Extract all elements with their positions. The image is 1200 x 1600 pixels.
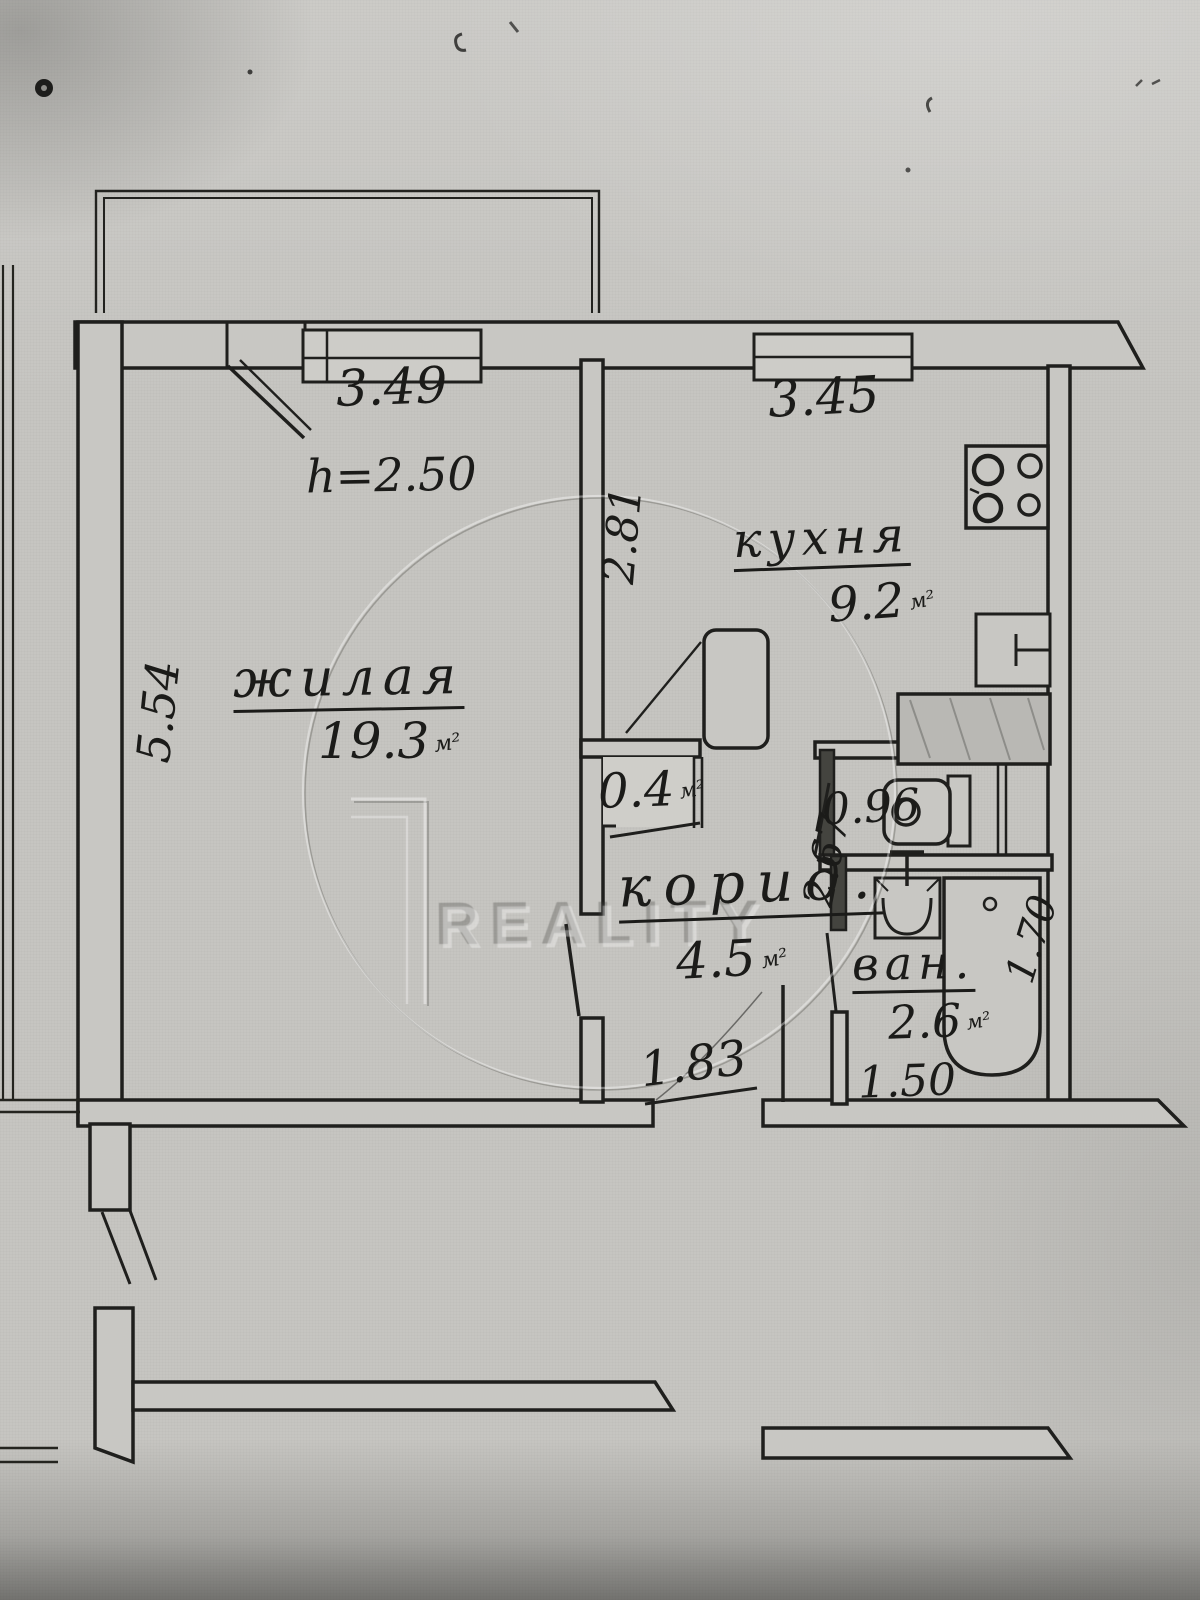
door-kitchen xyxy=(626,630,768,748)
room-area-bathroom: 2.6м² xyxy=(887,996,992,1046)
area-unit: м² xyxy=(678,776,707,801)
stairwell-walls xyxy=(90,1124,1070,1462)
stove-icon xyxy=(966,446,1048,528)
room-area-kitchen: 9.2м² xyxy=(826,574,936,629)
dim-living-width: 3.49 xyxy=(335,360,448,414)
wall-left xyxy=(78,322,122,1124)
outer-wall-top xyxy=(75,322,1143,438)
floor-plan-scan: REALITY 3.49 h=2.50 3.45 5.54 2.81 2.67 … xyxy=(0,0,1200,1600)
area-value: 19.3 xyxy=(318,712,429,770)
room-area-closet: 0.4м² xyxy=(597,764,706,816)
room-label-corridor: корид. xyxy=(617,851,883,923)
area-value: 0.4 xyxy=(597,761,675,820)
area-unit: м² xyxy=(907,587,937,613)
balcony-door xyxy=(227,322,311,438)
dim-living-depth: 5.54 xyxy=(130,658,186,765)
area-unit: м² xyxy=(965,1009,993,1033)
dim-ceiling-height: h=2.50 xyxy=(306,451,477,500)
wall-bath-left xyxy=(832,1012,847,1104)
room-area-living: 19.3м² xyxy=(318,716,461,766)
area-unit: м² xyxy=(759,946,790,973)
room-label-bathroom: ван. xyxy=(852,939,976,994)
dim-entry-wall: 1.83 xyxy=(637,1034,749,1095)
wall-bottom xyxy=(78,1100,1184,1126)
room-label-kitchen: кухня xyxy=(732,511,911,572)
sink-kitchen-icon xyxy=(976,614,1050,686)
watermark-logo xyxy=(351,799,428,1006)
room-area-corridor: 4.5м² xyxy=(675,931,789,987)
wc-shaft-partition xyxy=(998,764,1006,868)
neighbor-wall-lines xyxy=(0,265,80,1462)
area-unit: м² xyxy=(433,731,463,757)
area-value: 9.2 xyxy=(826,572,906,633)
room-label-living: жилая xyxy=(233,650,465,713)
duct-block xyxy=(898,694,1050,764)
balcony xyxy=(96,191,599,313)
dim-bathroom-width: 1.50 xyxy=(857,1058,956,1105)
wall-interior-living xyxy=(581,360,603,1102)
area-value: 4.5 xyxy=(675,929,757,991)
dim-kitchen-depth: 2.81 xyxy=(597,484,649,585)
area-value: 2.6 xyxy=(887,993,962,1050)
dim-kitchen-width: 3.45 xyxy=(767,369,881,425)
